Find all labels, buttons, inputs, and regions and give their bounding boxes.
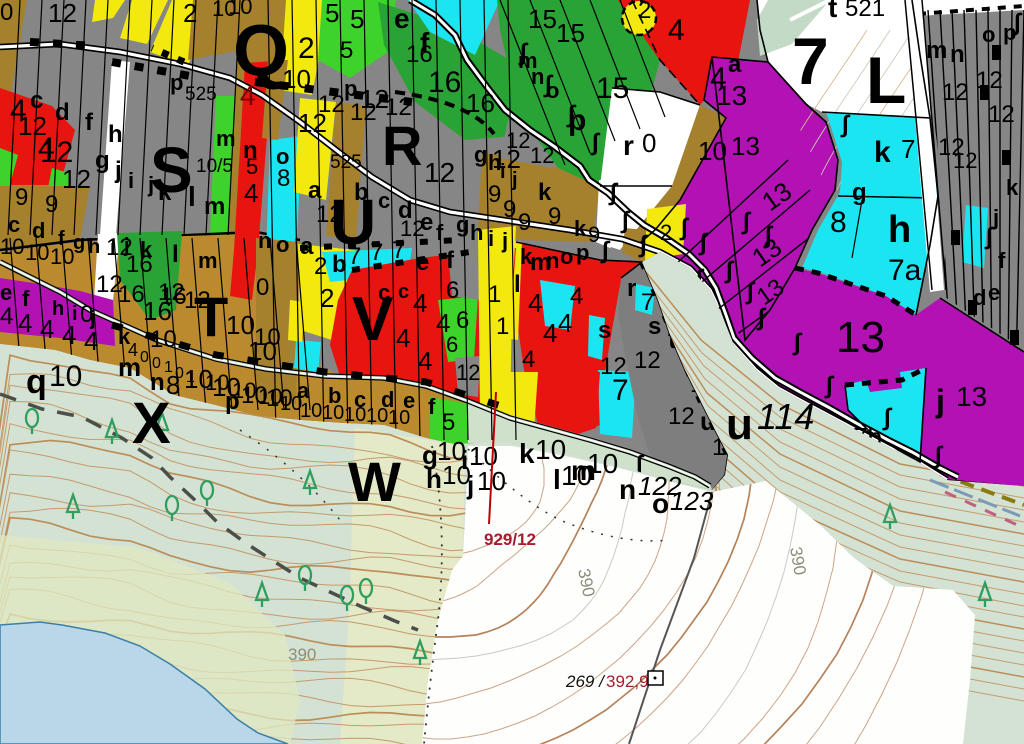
svg-text:p: p (344, 76, 357, 101)
svg-text:a: a (308, 177, 322, 204)
svg-text:8: 8 (277, 165, 290, 192)
svg-text:7: 7 (901, 134, 915, 164)
svg-text:10: 10 (25, 240, 49, 265)
svg-text:Q: Q (233, 11, 289, 91)
svg-text:4: 4 (570, 283, 583, 310)
svg-text:4: 4 (522, 346, 535, 373)
svg-text:b: b (354, 179, 369, 206)
svg-text:n: n (531, 64, 544, 89)
svg-text:13: 13 (956, 381, 987, 412)
svg-text:16: 16 (406, 41, 433, 68)
svg-text:16: 16 (126, 251, 153, 278)
svg-text:521: 521 (845, 0, 885, 22)
svg-text:12: 12 (48, 0, 77, 28)
svg-text:c: c (398, 281, 409, 303)
svg-text:12: 12 (385, 94, 412, 121)
svg-text:10: 10 (49, 360, 82, 393)
svg-text:a: a (728, 51, 742, 78)
svg-text:5: 5 (325, 0, 339, 28)
svg-text:n: n (950, 41, 965, 68)
svg-text:4: 4 (668, 14, 685, 47)
svg-text:12: 12 (62, 164, 91, 194)
svg-text:k: k (574, 216, 587, 241)
svg-text:h: h (470, 220, 483, 245)
svg-text:4: 4 (40, 314, 54, 344)
svg-text:k: k (1006, 175, 1019, 200)
svg-text:12: 12 (424, 157, 455, 188)
svg-text:10: 10 (344, 404, 366, 426)
svg-text:12: 12 (988, 101, 1015, 128)
svg-text:10: 10 (50, 244, 74, 269)
svg-text:m: m (926, 37, 947, 64)
svg-text:13: 13 (731, 131, 760, 161)
svg-text:12: 12 (634, 347, 661, 374)
svg-text:10: 10 (228, 0, 252, 19)
svg-text:e: e (416, 249, 429, 276)
svg-text:8: 8 (166, 370, 180, 400)
svg-text:5: 5 (350, 4, 364, 34)
svg-text:R: R (382, 114, 422, 177)
svg-text:0: 0 (140, 349, 149, 366)
svg-text:8: 8 (830, 206, 847, 239)
svg-text:n: n (546, 248, 559, 273)
svg-text:10: 10 (266, 385, 293, 412)
svg-text:525: 525 (330, 152, 362, 173)
svg-text:p: p (225, 388, 240, 415)
svg-text:13: 13 (836, 313, 885, 362)
svg-text:c: c (30, 87, 43, 114)
svg-text:i: i (500, 161, 506, 183)
svg-text:f: f (436, 220, 444, 245)
svg-text:16: 16 (466, 88, 495, 118)
svg-text:10: 10 (300, 400, 322, 422)
svg-text:390: 390 (288, 645, 316, 664)
svg-text:4: 4 (38, 132, 55, 165)
svg-text:114: 114 (757, 396, 814, 437)
svg-text:f: f (998, 248, 1006, 273)
svg-text:i: i (110, 237, 116, 259)
svg-text:g: g (456, 212, 469, 237)
svg-text:c: c (378, 280, 390, 305)
svg-text:4: 4 (418, 346, 432, 376)
svg-text:4: 4 (528, 288, 542, 318)
svg-text:9: 9 (45, 191, 58, 218)
svg-text:r: r (623, 130, 634, 161)
svg-text:m: m (204, 193, 225, 220)
svg-text:k: k (519, 438, 535, 469)
svg-text:e: e (394, 3, 410, 34)
svg-text:4: 4 (240, 80, 256, 111)
svg-text:k: k (874, 136, 891, 169)
svg-text:269 /: 269 / (565, 672, 606, 691)
svg-text:h: h (108, 121, 123, 148)
svg-text:h: h (88, 236, 100, 258)
svg-text:1: 1 (488, 281, 501, 308)
svg-text:4: 4 (84, 326, 98, 356)
svg-text:c: c (378, 188, 390, 213)
svg-text:f: f (85, 109, 94, 136)
svg-text:j: j (501, 228, 508, 253)
svg-text:r: r (627, 275, 636, 302)
svg-text:j: j (466, 470, 474, 500)
svg-text:392,9: 392,9 (606, 672, 649, 691)
svg-text:6: 6 (446, 332, 458, 357)
svg-text:2: 2 (660, 220, 672, 245)
svg-text:4: 4 (18, 308, 32, 338)
svg-text:12: 12 (530, 143, 554, 168)
svg-text:p: p (170, 70, 183, 95)
svg-text:k: k (158, 179, 172, 206)
svg-text:4: 4 (396, 323, 410, 353)
svg-text:j: j (935, 383, 945, 419)
svg-text:10: 10 (388, 407, 410, 429)
svg-text:X: X (132, 391, 171, 456)
svg-text:n: n (150, 369, 165, 396)
svg-text:l: l (514, 271, 521, 298)
svg-text:k: k (538, 179, 552, 206)
svg-text:15: 15 (528, 4, 557, 34)
svg-text:9: 9 (503, 196, 516, 223)
svg-text:12: 12 (318, 91, 345, 118)
svg-text:5: 5 (246, 154, 258, 179)
svg-text:t: t (828, 0, 837, 23)
svg-text:j: j (147, 172, 154, 197)
svg-text:10: 10 (0, 234, 24, 259)
svg-text:0: 0 (642, 128, 656, 158)
svg-text:9: 9 (15, 184, 28, 211)
svg-text:929/12: 929/12 (484, 530, 536, 549)
svg-text:o: o (276, 232, 289, 257)
svg-text:f: f (446, 247, 455, 274)
svg-text:12: 12 (600, 353, 627, 380)
svg-text:9: 9 (518, 209, 531, 236)
svg-text:m: m (198, 248, 218, 273)
svg-text:10: 10 (241, 382, 268, 409)
svg-text:12: 12 (942, 79, 969, 106)
svg-text:s: s (648, 313, 661, 340)
svg-text:5: 5 (340, 37, 353, 64)
svg-text:15: 15 (556, 18, 585, 48)
svg-text:123: 123 (670, 486, 714, 516)
svg-text:16: 16 (160, 283, 187, 310)
svg-text:12: 12 (184, 287, 211, 314)
svg-text:f: f (428, 394, 436, 419)
svg-text:g: g (852, 179, 867, 206)
svg-text:2: 2 (183, 0, 197, 28)
svg-text:j: j (114, 157, 122, 184)
svg-text:i: i (128, 168, 134, 193)
svg-text:e: e (988, 280, 1000, 305)
svg-text:4: 4 (413, 288, 427, 318)
svg-text:s: s (598, 317, 611, 344)
svg-text:12: 12 (668, 403, 695, 430)
svg-text:u: u (726, 400, 753, 449)
svg-text:6: 6 (446, 277, 459, 304)
svg-text:10: 10 (587, 448, 618, 479)
svg-text:9: 9 (488, 181, 501, 208)
svg-text:12: 12 (316, 201, 343, 228)
svg-text:7: 7 (370, 239, 383, 266)
svg-text:10: 10 (322, 402, 344, 424)
svg-text:6: 6 (456, 307, 469, 334)
svg-text:4: 4 (244, 178, 258, 208)
svg-text:525: 525 (185, 84, 217, 105)
svg-text:j: j (992, 205, 999, 230)
svg-text:10: 10 (254, 324, 281, 351)
svg-text:9: 9 (588, 222, 600, 247)
svg-text:13: 13 (716, 80, 747, 111)
svg-text:m: m (216, 126, 236, 151)
svg-text:g: g (474, 142, 487, 167)
svg-text:10/5: 10/5 (196, 156, 233, 177)
svg-text:p: p (576, 240, 589, 265)
svg-text:h: h (426, 464, 442, 494)
svg-text:g: g (73, 232, 85, 254)
svg-text:4: 4 (62, 320, 76, 350)
svg-text:0: 0 (0, 0, 13, 26)
svg-text:7a: 7a (888, 254, 922, 287)
svg-text:g: g (95, 147, 110, 174)
svg-text:j: j (511, 169, 518, 191)
svg-text:9: 9 (548, 203, 561, 230)
svg-text:l: l (553, 464, 561, 495)
svg-text:10: 10 (366, 405, 388, 427)
svg-text:10: 10 (282, 64, 311, 94)
svg-text:W: W (348, 450, 401, 513)
svg-text:l: l (172, 241, 179, 268)
svg-text:o: o (652, 488, 669, 519)
svg-text:n: n (258, 228, 271, 253)
svg-text:o: o (560, 244, 573, 269)
svg-text:7: 7 (641, 289, 654, 316)
svg-text:10: 10 (184, 364, 213, 394)
svg-text:b: b (332, 251, 347, 278)
svg-text:m: m (118, 352, 141, 382)
svg-text:h: h (888, 209, 911, 251)
svg-text:q: q (26, 363, 47, 401)
svg-text:i: i (488, 226, 494, 251)
svg-text:2: 2 (320, 283, 334, 313)
svg-text:a: a (300, 233, 314, 260)
svg-text:16: 16 (428, 66, 461, 99)
svg-text:o: o (982, 22, 995, 47)
svg-text:5: 5 (442, 409, 455, 436)
svg-text:d: d (55, 99, 70, 126)
svg-text:1: 1 (496, 313, 509, 340)
svg-text:12: 12 (506, 128, 530, 153)
svg-text:7: 7 (348, 243, 361, 270)
svg-text:0: 0 (256, 274, 269, 301)
svg-text:4: 4 (543, 318, 557, 348)
svg-text:4: 4 (558, 308, 572, 338)
svg-text:l: l (188, 181, 196, 212)
svg-text:4: 4 (0, 303, 13, 330)
svg-text:12: 12 (953, 148, 977, 173)
svg-text:e: e (0, 280, 12, 305)
svg-text:7: 7 (392, 237, 405, 264)
svg-text:L: L (866, 43, 906, 117)
svg-text:2: 2 (298, 32, 315, 65)
svg-text:n: n (619, 474, 636, 505)
svg-text:7: 7 (792, 24, 829, 98)
svg-text:16: 16 (118, 281, 145, 308)
svg-text:4: 4 (10, 94, 27, 127)
svg-text:2: 2 (314, 253, 327, 280)
svg-text:12: 12 (456, 360, 480, 385)
svg-text:2: 2 (638, 0, 651, 24)
svg-text:10: 10 (150, 326, 177, 353)
